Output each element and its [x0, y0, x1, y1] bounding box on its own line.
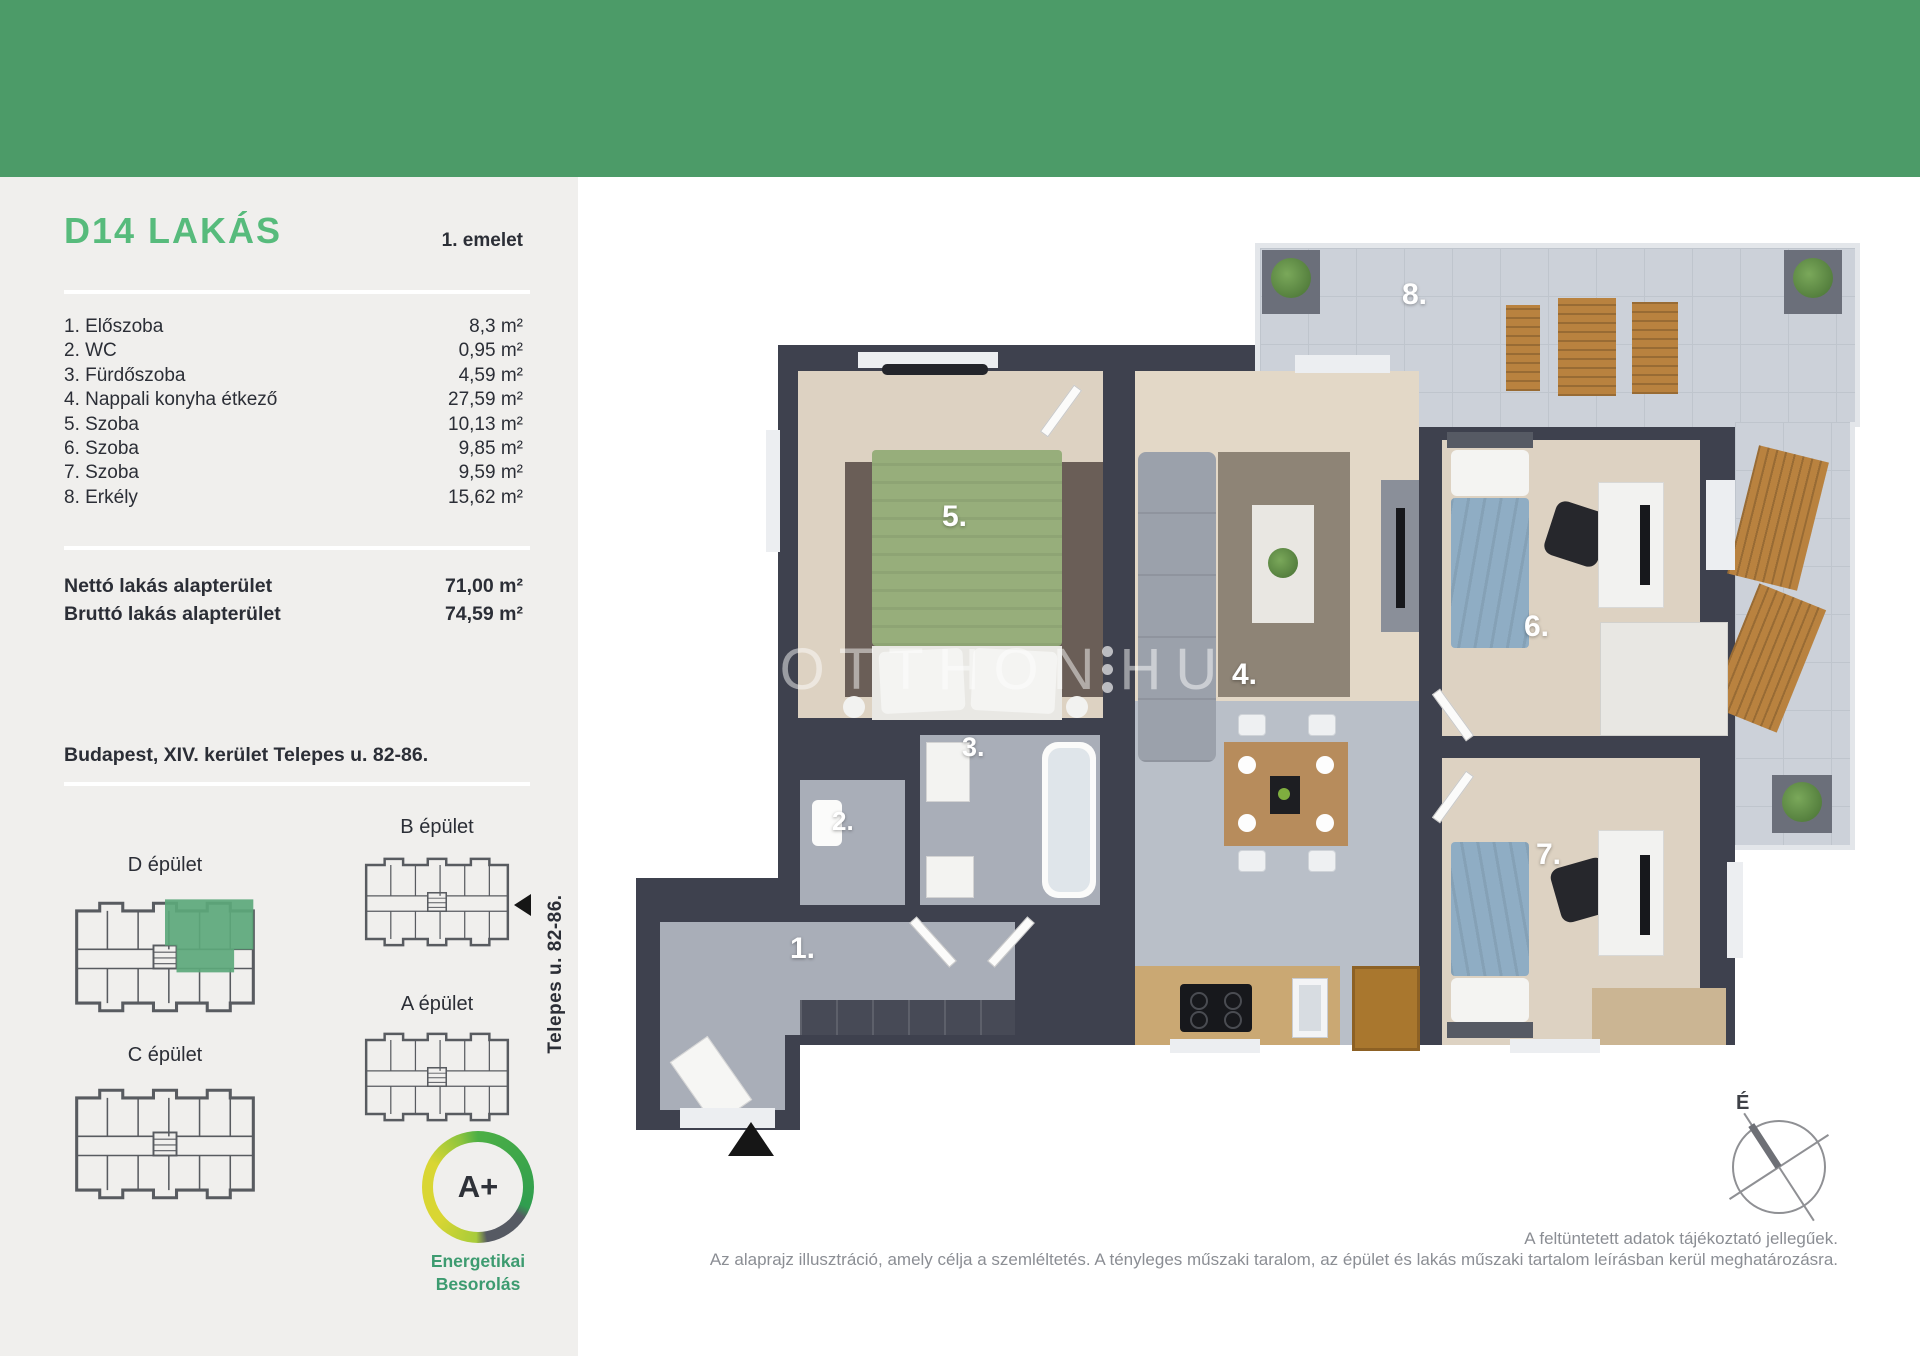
plant-icon [1268, 548, 1298, 578]
room-label: 4. Nappali konyha étkező [64, 388, 277, 412]
watermark-dots-icon [1102, 646, 1113, 693]
single-bed [1451, 498, 1529, 648]
entrance-arrow-icon [728, 1122, 774, 1156]
dining-table [1224, 742, 1348, 846]
room-label: 6. Szoba [64, 437, 139, 461]
room-area: 9,59 m² [459, 461, 523, 485]
monitor [1640, 855, 1650, 935]
room-label: 7. Szoba [64, 461, 139, 485]
disclaimer-line1: A feltüntetett adatok tájékoztató jelleg… [638, 1228, 1838, 1249]
disclaimer-line2: Az alaprajz illusztráció, amely célja a … [638, 1249, 1838, 1270]
bed-headboard [1447, 1022, 1533, 1038]
room-row: 6. Szoba9,85 m² [64, 437, 523, 461]
room-label: 5. Szoba [64, 413, 139, 437]
tv [1396, 508, 1405, 608]
plan-room-number-2: 2. [832, 806, 854, 837]
bowl [1278, 788, 1290, 800]
building-thumbnail-a [360, 1023, 514, 1131]
room-row: 8. Erkély15,62 m² [64, 486, 523, 510]
bathtub [1042, 742, 1096, 898]
room-area: 9,85 m² [459, 437, 523, 461]
room-label: 1. Előszoba [64, 315, 163, 339]
room-area: 27,59 m² [448, 388, 523, 412]
dining-chair [1308, 850, 1336, 872]
double-bed [872, 450, 1062, 646]
sofa [1138, 452, 1216, 762]
divider-line [64, 546, 530, 550]
energy-rating-value: A+ [433, 1142, 523, 1232]
room-row: 4. Nappali konyha étkező27,59 m² [64, 388, 523, 412]
plan-room-number-7: 7. [1536, 838, 1561, 872]
planter-box [1772, 775, 1832, 833]
building-thumbnail-c [69, 1078, 261, 1210]
room-row: 7. Szoba9,59 m² [64, 461, 523, 485]
planter-box [1784, 250, 1842, 314]
room-area: 10,13 m² [448, 413, 523, 437]
plate [1316, 814, 1334, 832]
disclaimer: A feltüntetett adatok tájékoztató jelleg… [638, 1228, 1838, 1270]
watermark-text: UJOTTHON [681, 636, 1109, 703]
dining-chair [1238, 714, 1266, 736]
wardrobe [1600, 622, 1728, 736]
room-label: 8. Erkély [64, 486, 138, 510]
room-area: 4,59 m² [459, 364, 523, 388]
energy-rating-badge: A+ [422, 1131, 534, 1243]
watermark-text: HU [1119, 636, 1231, 703]
room-row: 2. WC0,95 m² [64, 339, 523, 363]
planter-box [1262, 250, 1320, 314]
room-label: 3. Fürdőszoba [64, 364, 185, 388]
total-label: Nettó lakás alapterület [64, 572, 272, 600]
window-blind [882, 364, 988, 375]
plate [1316, 756, 1334, 774]
room-row: 3. Fürdőszoba4,59 m² [64, 364, 523, 388]
room-list: 1. Előszoba8,3 m² 2. WC0,95 m² 3. Fürdős… [64, 315, 523, 510]
building-thumbnail-b [360, 846, 514, 958]
room-label: 2. WC [64, 339, 117, 363]
dining-chair [1308, 714, 1336, 736]
total-row: Bruttó lakás alapterület74,59 m² [64, 600, 523, 628]
total-row: Nettó lakás alapterület71,00 m² [64, 572, 523, 600]
plate [1238, 814, 1256, 832]
address: Budapest, XIV. kerület Telepes u. 82-86. [64, 744, 428, 767]
balcony-door-opening [1295, 355, 1390, 373]
page-title: D14 LAKÁS [64, 210, 282, 252]
plan-room-number-6: 6. [1524, 610, 1549, 644]
highlighted-unit-region [165, 899, 253, 972]
plan-room-number-5: 5. [942, 500, 967, 534]
single-bed [1451, 842, 1529, 976]
burner [1224, 1011, 1242, 1029]
room-area: 8,3 m² [469, 315, 523, 339]
compass-icon [1732, 1120, 1826, 1214]
room6-balcony-door [1706, 480, 1735, 570]
divider-line [64, 290, 530, 294]
room7-window [1727, 862, 1743, 958]
desk [1598, 830, 1664, 956]
total-value: 74,59 m² [445, 600, 523, 628]
dining-chair [1238, 850, 1266, 872]
plant-icon [1271, 258, 1311, 298]
bed-headboard [1447, 432, 1533, 448]
pillow [1451, 450, 1529, 496]
energy-rating-label: Energetikai Besorolás [408, 1250, 548, 1296]
balcony-table [1558, 298, 1616, 396]
building-label-d: D épület [69, 854, 261, 877]
building-label-c: C épület [69, 1044, 261, 1067]
room7-bottom-window [1510, 1039, 1600, 1053]
desk [1598, 482, 1664, 608]
room-row: 1. Előszoba8,3 m² [64, 315, 523, 339]
plate [1238, 756, 1256, 774]
divider-line [64, 782, 530, 786]
header-bar [0, 0, 1920, 177]
floor-label: 1. emelet [260, 230, 523, 252]
plan-room-number-3: 3. [962, 732, 985, 763]
compass-north-label: É [1736, 1092, 1749, 1115]
plan-room-number-1: 1. [790, 932, 815, 966]
street-direction-arrow-icon [514, 894, 531, 916]
bedroom5-side-window [766, 430, 780, 552]
balcony-bench [1632, 302, 1678, 394]
room-row: 5. Szoba10,13 m² [64, 413, 523, 437]
plan-room-number-8: 8. [1402, 278, 1427, 312]
building-label-b: B épület [360, 816, 514, 839]
hall-wardrobe [800, 1000, 1015, 1035]
burner [1224, 992, 1242, 1010]
storage-bench [1592, 988, 1726, 1045]
plant-icon [1782, 782, 1822, 822]
kitchen-sink [1292, 978, 1328, 1038]
monitor [1640, 505, 1650, 585]
totals-block: Nettó lakás alapterület71,00 m² Bruttó l… [64, 572, 523, 628]
washing-machine [926, 856, 974, 898]
cooktop [1180, 984, 1252, 1032]
burner [1190, 1011, 1208, 1029]
room-area: 0,95 m² [459, 339, 523, 363]
room-area: 15,62 m² [448, 486, 523, 510]
street-label: Telepes u. 82-86. [545, 824, 567, 1124]
building-label-a: A épület [360, 993, 514, 1016]
pillow [1451, 978, 1529, 1022]
plan-room-number-4: 4. [1232, 658, 1257, 692]
total-label: Bruttó lakás alapterület [64, 600, 281, 628]
building-thumbnail-d [69, 888, 261, 1026]
watermark: UJOTTHON HU [726, 636, 1186, 703]
balcony-bench [1506, 305, 1540, 391]
burner [1190, 992, 1208, 1010]
kitchen-cabinet [1352, 966, 1420, 1051]
kitchen-window [1170, 1039, 1260, 1053]
total-value: 71,00 m² [445, 572, 523, 600]
plant-icon [1793, 258, 1833, 298]
